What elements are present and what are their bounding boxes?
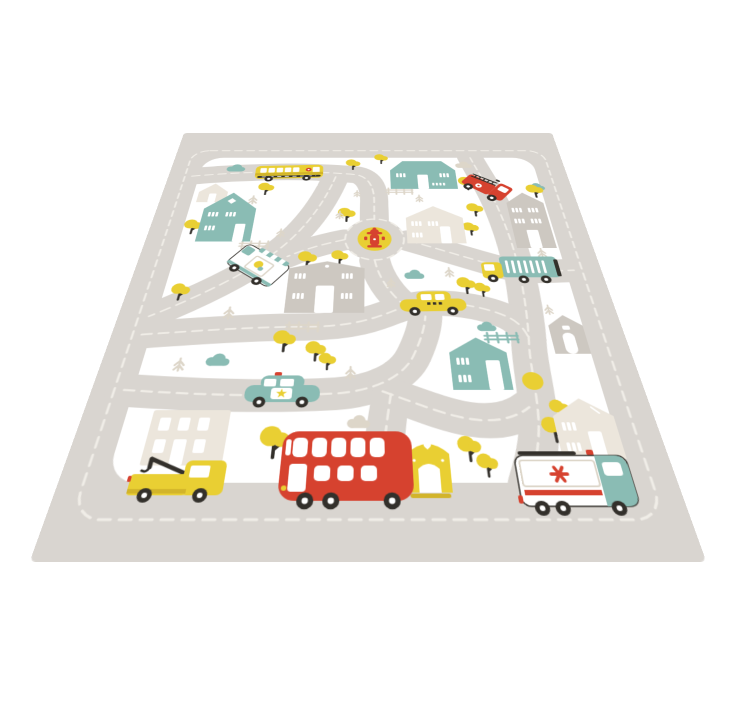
- ambulance: [510, 450, 643, 516]
- play-rug: [30, 133, 707, 562]
- rug-artwork: [30, 133, 707, 562]
- double-decker-bus: [276, 431, 415, 509]
- product-photo-canvas: [0, 0, 752, 703]
- gray-house-large: [284, 261, 365, 313]
